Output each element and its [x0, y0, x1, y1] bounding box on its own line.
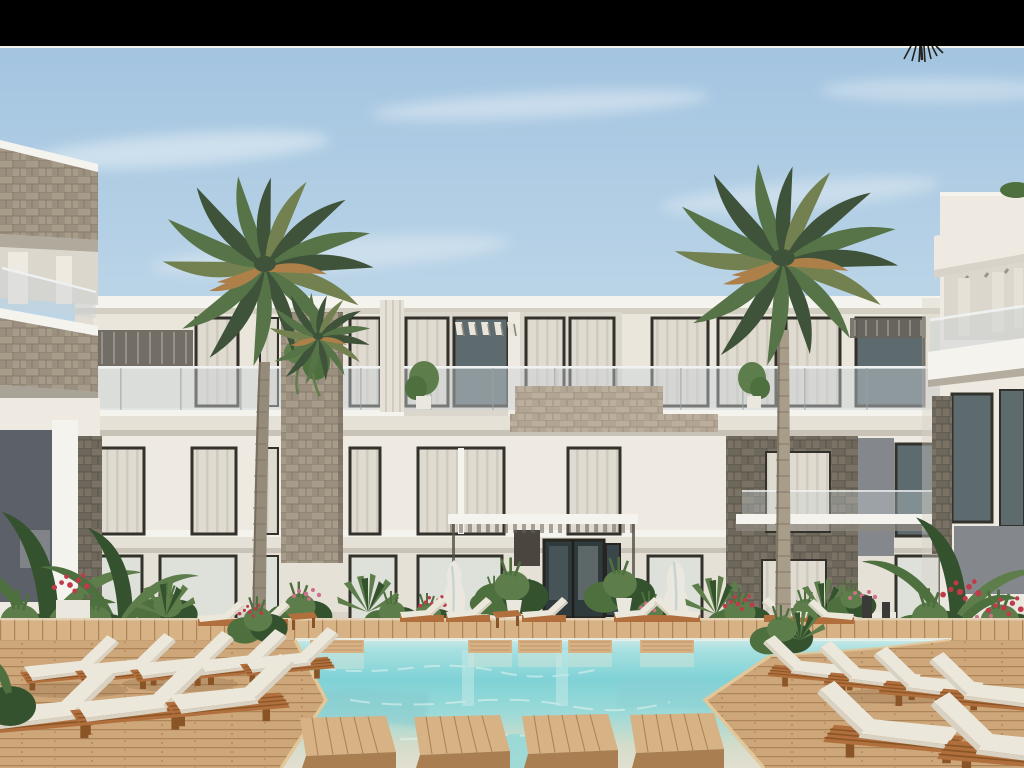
mid-balcony-right: [736, 490, 942, 531]
entrance-stone-header: [514, 530, 540, 566]
right-building-window: [952, 394, 992, 522]
resort-pool-render: [0, 0, 1024, 768]
stone-parapet-mid: [510, 414, 718, 432]
left-pergola-annex: [95, 330, 193, 366]
pilaster-fins: [380, 300, 404, 412]
entrance-canopy: [448, 514, 638, 524]
